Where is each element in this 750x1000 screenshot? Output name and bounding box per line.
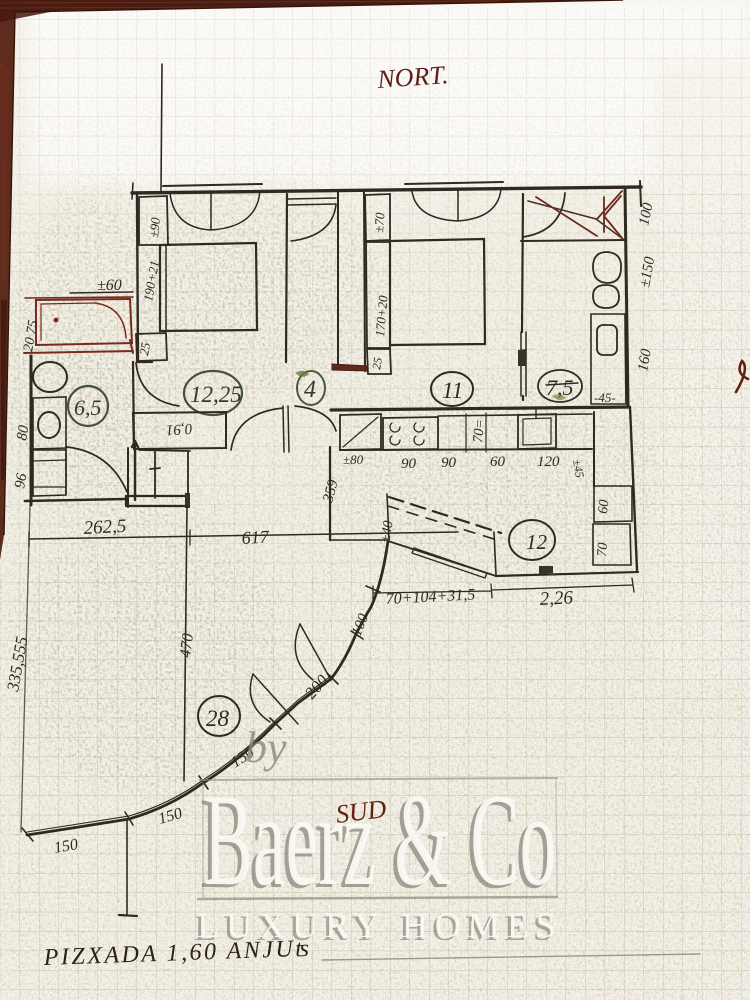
svg-text:±70: ±70 (371, 212, 387, 234)
svg-text:60: 60 (490, 454, 506, 470)
svg-text:470: 470 (177, 633, 197, 659)
svg-text:±60: ±60 (97, 277, 122, 294)
svg-text:25: 25 (369, 356, 385, 370)
svg-text:12,25: 12,25 (190, 382, 242, 407)
svg-text:6,5: 6,5 (74, 395, 102, 420)
svg-text:0,91: 0,91 (166, 420, 193, 438)
svg-text:11: 11 (442, 378, 463, 403)
svg-text:-45-: -45- (594, 390, 616, 405)
svg-text:±90: ±90 (146, 216, 163, 238)
svg-text:±80: ±80 (343, 452, 364, 467)
svg-text:NORT.: NORT. (375, 60, 449, 94)
svg-text:2,26: 2,26 (539, 587, 574, 610)
svg-text:120: 120 (537, 454, 560, 470)
svg-text:262,5: 262,5 (83, 516, 127, 539)
svg-text:SUD: SUD (334, 794, 388, 829)
svg-text:28: 28 (206, 706, 230, 731)
svg-text:70=: 70= (471, 419, 488, 444)
svg-text:Baerz & Co: Baerz & Co (203, 768, 556, 914)
svg-text:90: 90 (441, 455, 457, 471)
svg-text:90: 90 (401, 456, 417, 472)
svg-text:LUXURY HOMES: LUXURY HOMES (197, 905, 563, 945)
svg-text:by: by (245, 723, 287, 772)
svg-text:70: 70 (595, 542, 611, 557)
svg-text:4: 4 (304, 377, 316, 403)
svg-text:617: 617 (241, 527, 270, 548)
svg-text:60: 60 (596, 499, 612, 514)
svg-text:12: 12 (526, 530, 548, 554)
